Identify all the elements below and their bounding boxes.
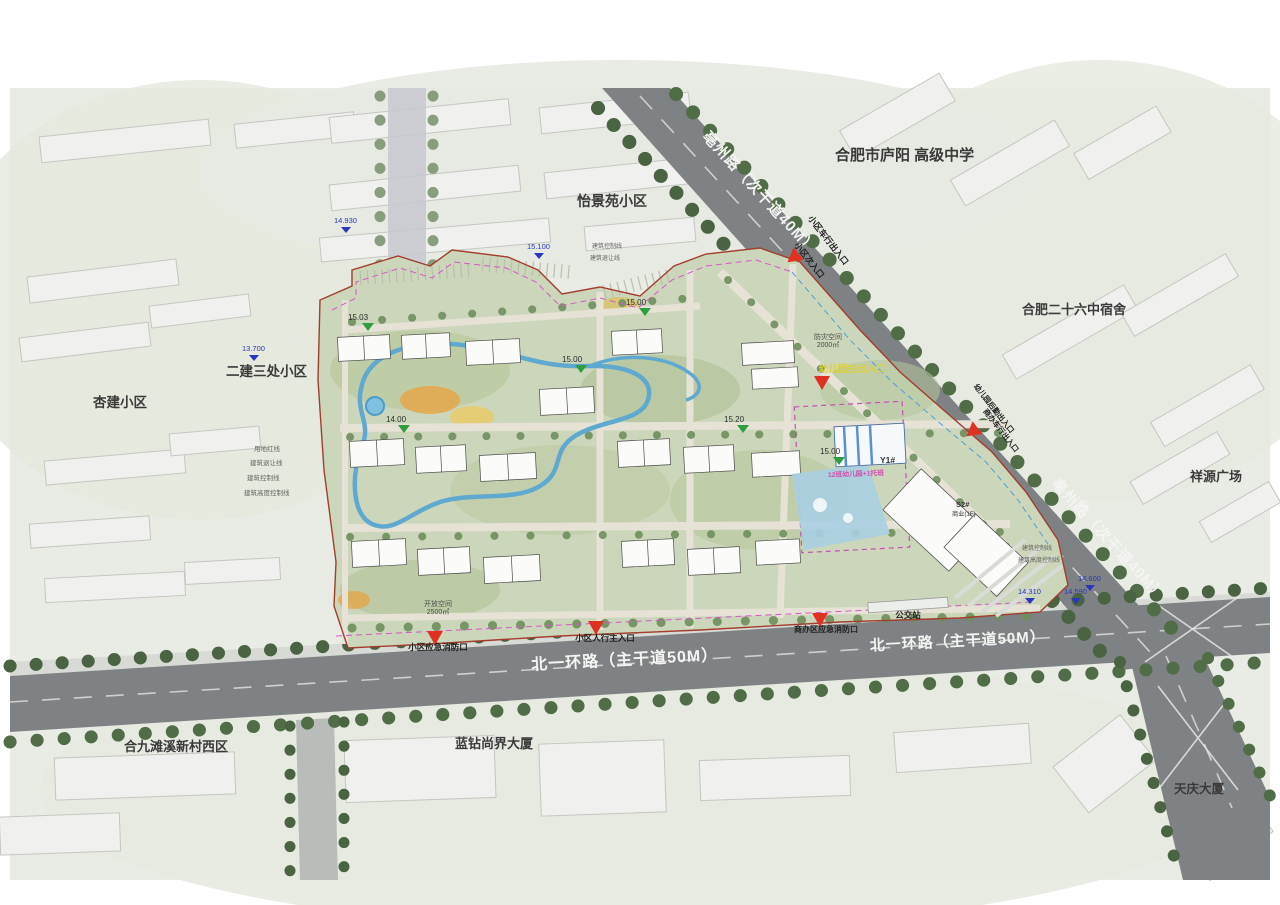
kindergarten-main-label: 幼儿园主出入口	[819, 363, 886, 375]
elevation-label: 14.930	[334, 216, 357, 225]
label-tianqing: 天庆大厦	[1174, 781, 1225, 796]
note-setback: 建筑退让线	[250, 458, 283, 467]
open-space-label: 开放空间	[424, 599, 452, 608]
label-dorm26: 合肥二十六中宿舍	[1022, 302, 1127, 317]
disaster-space-area: 2000㎡	[817, 341, 840, 349]
main-pedestrian-label: 小区人行主入口	[574, 633, 635, 643]
note-control: 建筑控制线	[247, 473, 280, 482]
kindergarten-tag: Y1#	[880, 455, 895, 465]
emergency-fire-label: 小区应急消防口	[407, 642, 468, 652]
elevation-label: 15.00	[562, 355, 583, 364]
label-hejiu: 合九滩溪新村西区	[124, 739, 228, 754]
commercial-tag: S2#	[956, 500, 970, 509]
note-redline: 用地红线	[254, 444, 281, 453]
note-height-control-east: 建筑高度控制线	[1018, 556, 1060, 564]
minor-street-south	[296, 718, 338, 880]
elevation-label: 15.00	[820, 447, 841, 456]
note-control-north: 建筑控制线	[592, 242, 622, 250]
elevation-label: 15.00	[626, 298, 647, 307]
elevation-label: 15.03	[348, 313, 369, 322]
label-xingjian: 杏建小区	[93, 394, 147, 410]
note-setback-north: 建筑退让线	[590, 254, 620, 262]
elevation-label: 14.00	[386, 415, 407, 424]
label-erjian: 二建三处小区	[226, 363, 307, 379]
site-plan-page: 14.930 15.100 13.700 14.600 14.310 14.59…	[0, 0, 1280, 905]
label-lanzuan: 蓝钻尚界大厦	[455, 736, 534, 751]
elevation-label: 14.600	[1078, 574, 1101, 583]
master-plan-svg: 14.930 15.100 13.700 14.600 14.310 14.59…	[0, 0, 1280, 905]
label-xiangyuan: 祥源广场	[1190, 469, 1242, 484]
elevation-label: 14.310	[1018, 587, 1041, 596]
label-yijingyuan: 怡景苑小区	[577, 193, 647, 209]
label-school: 合肥市庐阳 高级中学	[834, 146, 974, 164]
bus-stop-label: 公交站	[895, 610, 921, 620]
commercial-name: 商业(1F)	[952, 510, 976, 518]
disaster-space-label: 防灾空间	[814, 332, 842, 341]
note-control-east: 建筑控制线	[1022, 544, 1052, 552]
elevation-label: 14.590	[1064, 587, 1087, 596]
pond	[366, 397, 384, 415]
commercial-emergency-label: 商办区应急消防口	[794, 624, 858, 634]
elevation-label: 15.100	[527, 242, 550, 251]
note-height-control: 建筑高度控制线	[244, 488, 290, 497]
open-space-area: 2500㎡	[427, 608, 450, 616]
elevation-label: 13.700	[242, 344, 265, 353]
elevation-label: 15.20	[724, 415, 745, 424]
